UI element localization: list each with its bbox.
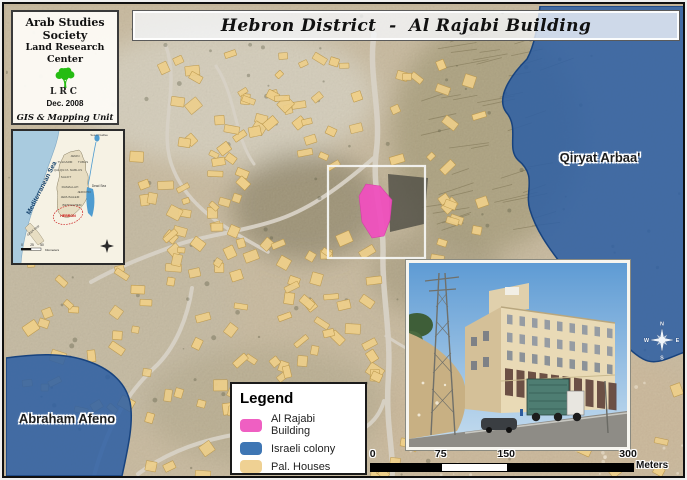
photo-person bbox=[520, 409, 523, 416]
legend: Legend Al Rajabi Building Israeli colony… bbox=[230, 382, 367, 475]
svg-text:SALFIT: SALFIT bbox=[61, 175, 72, 179]
compass-n-label: N bbox=[660, 322, 664, 328]
scale-tick-75: 75 bbox=[435, 448, 447, 460]
svg-text:Kilometers: Kilometers bbox=[45, 248, 60, 252]
legend-item-israeli-colony: Israeli colony bbox=[240, 442, 357, 455]
compass-s-label: S bbox=[660, 356, 664, 362]
locator-inset-map: Sea of Galilee Mediterranean Sea Dead Se… bbox=[11, 129, 125, 265]
legend-item-pal-houses: Pal. Houses bbox=[240, 460, 357, 473]
svg-text:TUBAS: TUBAS bbox=[78, 160, 88, 164]
svg-text:QALQILYA: QALQILYA bbox=[54, 168, 70, 172]
scale-tick-0: 0 bbox=[370, 448, 376, 460]
map-date: Dec. 2008 bbox=[47, 99, 84, 108]
scale-unit: Meters bbox=[636, 460, 668, 471]
large-roof-shadow bbox=[388, 174, 428, 232]
legend-item-al-rajabi: Al Rajabi Building bbox=[240, 413, 357, 437]
hebron-label: HEBRON bbox=[60, 214, 76, 218]
svg-text:JERUSALEM: JERUSALEM bbox=[61, 195, 80, 199]
compass-e-label: E bbox=[676, 338, 680, 344]
svg-text:50: 50 bbox=[40, 243, 44, 247]
legend-label-pal-houses: Pal. Houses bbox=[271, 461, 330, 473]
org-abbr: LRC bbox=[50, 87, 80, 97]
legend-label-israeli-colony: Israeli colony bbox=[271, 443, 335, 455]
colony-label-abraham-afeno: Abraham Afeno bbox=[6, 411, 128, 426]
mapping-unit: GIS & Mapping Unit bbox=[17, 113, 114, 123]
compass-rose-icon: N E S W bbox=[643, 319, 681, 361]
scale-tick-labels: 0 75 150 300 bbox=[370, 448, 632, 460]
legend-swatch-al-rajabi bbox=[240, 419, 262, 432]
svg-text:0: 0 bbox=[21, 243, 23, 247]
colony-label-qiryat-arbaa: Qiryat Arbaa' bbox=[520, 150, 680, 165]
svg-text:25: 25 bbox=[30, 243, 34, 247]
map-title-bar: Hebron District - Al Rajabi Building bbox=[132, 10, 680, 41]
scale-tick-150: 150 bbox=[497, 448, 515, 460]
galilee-label: Sea of Galilee bbox=[90, 133, 108, 137]
svg-text:NABLUS: NABLUS bbox=[70, 168, 82, 172]
legend-swatch-israeli-colony bbox=[240, 442, 262, 455]
svg-text:RAMALLAH: RAMALLAH bbox=[62, 185, 79, 189]
map-sheet: Hebron District - Al Rajabi Building Ara… bbox=[0, 0, 687, 480]
legend-label-al-rajabi: Al Rajabi Building bbox=[271, 413, 357, 437]
svg-text:JERICHO: JERICHO bbox=[77, 190, 91, 194]
svg-text:TULKARM: TULKARM bbox=[58, 160, 73, 164]
lrc-tree-logo-icon bbox=[42, 67, 88, 89]
compass-w-label: W bbox=[644, 338, 650, 344]
scale-bar: 0 75 150 300 Meters bbox=[370, 448, 666, 474]
credits-box: Arab Studies Society Land Research Cente… bbox=[11, 10, 119, 125]
legend-swatch-pal-houses bbox=[240, 460, 262, 473]
map-title: Hebron District - Al Rajabi Building bbox=[221, 16, 591, 36]
al-rajabi-building-photo bbox=[406, 260, 630, 450]
svg-text:JENIN: JENIN bbox=[71, 154, 80, 158]
legend-title: Legend bbox=[240, 390, 357, 407]
org-name-2: Land Research Center bbox=[13, 42, 117, 65]
scale-bar-track bbox=[370, 463, 634, 472]
org-name-1: Arab Studies Society bbox=[13, 17, 117, 42]
svg-text:BETHLEHEM: BETHLEHEM bbox=[63, 203, 82, 207]
dead-sea-label: Dead Sea bbox=[92, 184, 106, 188]
scale-tick-300: 300 bbox=[619, 448, 637, 460]
